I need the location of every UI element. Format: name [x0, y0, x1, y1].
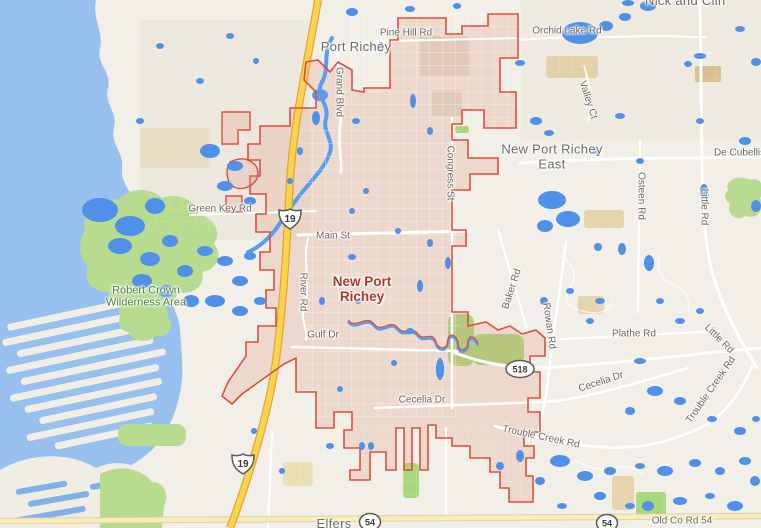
ponds-layer — [0, 0, 761, 528]
map-canvas[interactable]: 19 19 518 54 54 Port Richey Nick and Cli… — [0, 0, 761, 528]
